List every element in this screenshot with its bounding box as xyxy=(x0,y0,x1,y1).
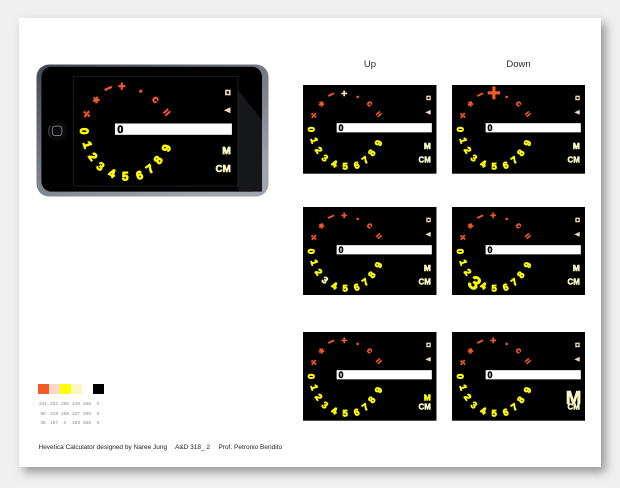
svg-text:M: M xyxy=(565,387,581,408)
svg-text:+: + xyxy=(490,210,496,221)
svg-text:+: + xyxy=(487,85,501,106)
svg-text:M: M xyxy=(572,262,579,272)
svg-text:+: + xyxy=(118,80,125,94)
svg-text:M: M xyxy=(572,141,579,151)
svg-text:+: + xyxy=(341,89,347,100)
svg-text:+: + xyxy=(490,336,496,347)
svg-text:M: M xyxy=(424,393,431,403)
svg-text:+: + xyxy=(341,336,347,347)
svg-text:M: M xyxy=(222,146,231,157)
svg-text:+: + xyxy=(341,210,347,221)
svg-text:M: M xyxy=(424,141,431,151)
svg-text:M: M xyxy=(424,262,431,272)
